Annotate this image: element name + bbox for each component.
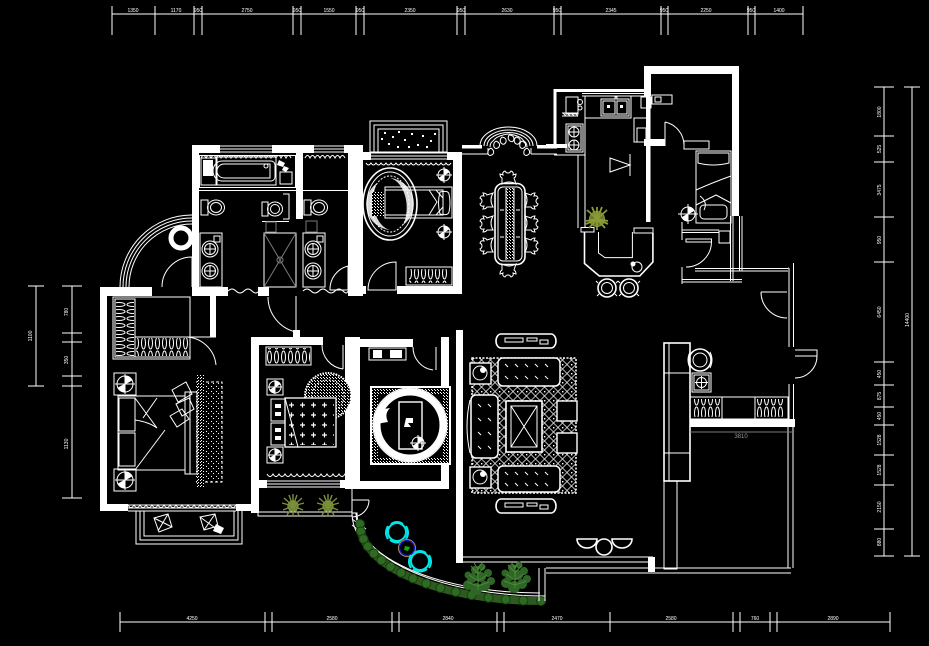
svg-text:780: 780 [64,308,70,317]
svg-text:2345: 2345 [605,8,616,14]
svg-text:6450: 6450 [877,306,883,317]
svg-text:2840: 2840 [442,616,453,622]
svg-text:2350: 2350 [404,8,415,14]
svg-text:950: 950 [457,8,466,14]
svg-text:950: 950 [293,8,302,14]
svg-text:4250: 4250 [186,616,197,622]
svg-text:1170: 1170 [171,8,182,14]
svg-text:2630: 2630 [501,8,512,14]
svg-text:950: 950 [194,8,203,14]
svg-text:880: 880 [877,538,883,547]
svg-text:450: 450 [877,370,883,379]
svg-text:950: 950 [553,8,562,14]
svg-text:1800: 1800 [877,106,883,117]
svg-text:2890: 2890 [827,616,838,622]
svg-text:950: 950 [747,8,756,14]
svg-text:14400: 14400 [905,313,911,327]
svg-text:950: 950 [660,8,669,14]
svg-text:2580: 2580 [665,616,676,622]
svg-text:2250: 2250 [700,8,711,14]
svg-text:1528: 1528 [877,464,883,475]
svg-text:2580: 2580 [326,616,337,622]
svg-text:525: 525 [877,145,883,154]
svg-text:1400: 1400 [773,8,784,14]
svg-text:450: 450 [877,412,883,421]
svg-text:3475: 3475 [877,184,883,195]
svg-text:1550: 1550 [323,8,334,14]
svg-text:1100: 1100 [28,330,34,341]
svg-text:2750: 2750 [241,8,252,14]
svg-text:350: 350 [64,356,70,365]
svg-text:950: 950 [356,8,365,14]
svg-text:3810: 3810 [734,434,748,440]
svg-text:1528: 1528 [877,434,883,445]
svg-text:1130: 1130 [64,438,70,449]
svg-text:2470: 2470 [551,616,562,622]
svg-text:950: 950 [877,236,883,245]
svg-text:1350: 1350 [127,8,138,14]
svg-text:875: 875 [877,392,883,401]
svg-text:2150: 2150 [877,501,883,512]
svg-text:760: 760 [751,616,760,622]
